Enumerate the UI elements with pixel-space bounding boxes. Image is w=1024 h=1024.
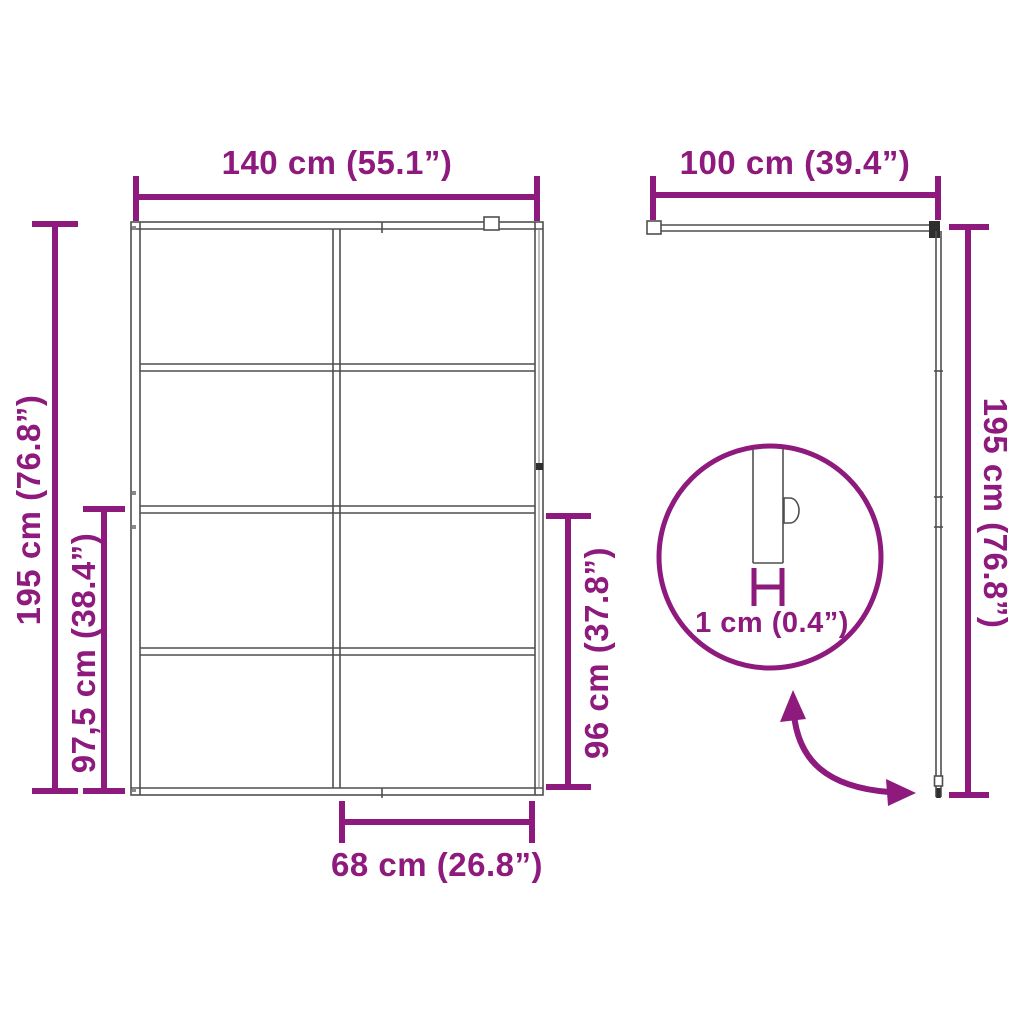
front-glass-dividers xyxy=(140,364,535,655)
front-glass-height-dimension: 96 cm (37.8”) xyxy=(546,516,615,787)
side-height-dimension: 195 cm (76.8”) xyxy=(949,227,1014,795)
front-outer-frame xyxy=(131,222,543,795)
arrow-head-up-icon xyxy=(780,690,806,722)
rotation-arrow xyxy=(780,690,916,806)
side-top-dimension: 100 cm (39.4”) xyxy=(653,144,938,220)
arrow-arc xyxy=(794,715,889,792)
arrow-head-right-icon xyxy=(886,779,916,806)
wall-mount-cap-icon xyxy=(647,221,661,234)
roller-bracket-icon xyxy=(484,217,499,230)
seal-tab-icon xyxy=(784,498,799,523)
dimension-diagram-canvas: 140 cm (55.1”) 195 cm (76.8”) 97,5 cm (3… xyxy=(0,0,1024,1024)
thickness-label: 1 cm (0.4”) xyxy=(695,607,849,639)
floor-guide-icon xyxy=(935,776,943,786)
door-handle-icon xyxy=(536,463,543,470)
front-glass-height-label: 96 cm (37.8”) xyxy=(578,547,615,759)
product-dimension-diagram: 140 cm (55.1”) 195 cm (76.8”) 97,5 cm (3… xyxy=(0,0,1024,1024)
front-bottom-dimension: 68 cm (26.8”) xyxy=(331,801,543,883)
screw-icon xyxy=(132,788,136,792)
side-glass-panel xyxy=(934,231,943,798)
front-view: 140 cm (55.1”) 195 cm (76.8”) 97,5 cm (3… xyxy=(10,144,615,883)
screw-icon xyxy=(132,525,136,529)
front-partial-height-dimension: 97,5 cm (38.4”) xyxy=(65,509,125,791)
side-top-rail xyxy=(647,221,940,238)
screw-icon xyxy=(132,491,136,495)
screw-icon xyxy=(132,226,136,230)
front-bottom-width-label: 68 cm (26.8”) xyxy=(331,846,543,883)
front-top-dimension: 140 cm (55.1”) xyxy=(136,144,537,221)
side-width-label: 100 cm (39.4”) xyxy=(680,144,911,181)
front-partial-height-label: 97,5 cm (38.4”) xyxy=(65,533,102,773)
panel-bottom-tip xyxy=(937,788,941,798)
side-height-label: 195 cm (76.8”) xyxy=(977,398,1014,629)
thickness-detail: 1 cm (0.4”) xyxy=(659,446,881,668)
front-width-label: 140 cm (55.1”) xyxy=(222,144,453,181)
front-height-label: 195 cm (76.8”) xyxy=(10,395,47,626)
front-door-frame xyxy=(131,217,543,798)
rail-connector-icon xyxy=(929,221,940,238)
